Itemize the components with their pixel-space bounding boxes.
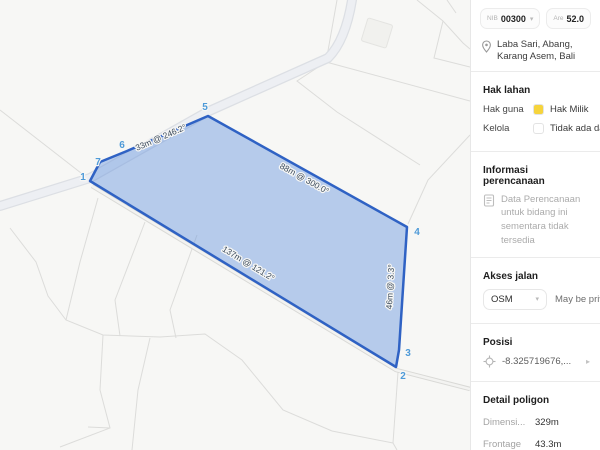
section-hak-lahan: Hak lahan Hak guna Hak Milik Kelola Tida… bbox=[471, 79, 600, 144]
position-row[interactable]: -8.325719676,... ▸ bbox=[483, 355, 590, 368]
vertex-label-4: 4 bbox=[414, 227, 420, 238]
row-value: Hak Milik bbox=[550, 104, 589, 115]
planning-info-row: Data Perencanaan untuk bidang ini sement… bbox=[483, 193, 590, 248]
parcel-app: 33m @ 246.2° 88m @ 300.0° 46m @ 3.3° 137… bbox=[0, 0, 600, 450]
divider bbox=[471, 323, 600, 324]
detail-row-frontage: Frontage 43.3m bbox=[483, 439, 590, 450]
divider bbox=[471, 381, 600, 382]
planning-info-text: Data Perencanaan untuk bidang ini sement… bbox=[501, 193, 590, 248]
kelola-swatch bbox=[533, 123, 544, 134]
area-field[interactable]: Are 52.0 bbox=[546, 8, 591, 29]
section-title: Detail poligon bbox=[483, 395, 590, 406]
detail-value: 43.3m bbox=[535, 439, 561, 450]
row-value: Tidak ada data bbox=[550, 123, 600, 134]
road-source-select[interactable]: OSM ▾ bbox=[483, 289, 547, 310]
vertex-label-2: 2 bbox=[400, 371, 406, 382]
section-title: Informasi perencanaan bbox=[483, 165, 590, 187]
section-detail-poligon: Detail poligon Dimensi... 329m Frontage … bbox=[471, 389, 600, 450]
hak-milik-swatch bbox=[533, 104, 544, 115]
detail-label: Dimensi... bbox=[483, 417, 529, 428]
akses-row: OSM ▾ May be private bbox=[483, 289, 590, 310]
nib-field-value: 00300 bbox=[501, 14, 526, 24]
akses-note: May be private bbox=[555, 294, 600, 305]
section-informasi: Informasi perencanaan Data Perencanaan u… bbox=[471, 159, 600, 250]
divider bbox=[471, 151, 600, 152]
detail-label: Frontage bbox=[483, 439, 529, 450]
coordinates-value: -8.325719676,... bbox=[502, 356, 580, 367]
vertex-label-5: 5 bbox=[202, 102, 208, 113]
section-title: Akses jalan bbox=[483, 271, 590, 282]
location-pin-icon bbox=[481, 40, 492, 53]
section-title: Hak lahan bbox=[483, 85, 590, 96]
detail-value: 329m bbox=[535, 417, 559, 428]
vertex-label-1: 1 bbox=[80, 172, 86, 183]
document-icon bbox=[483, 194, 495, 207]
top-fields: NIB 00300 ▾ Are 52.0 bbox=[480, 8, 594, 29]
section-posisi: Posisi -8.325719676,... ▸ bbox=[471, 331, 600, 374]
details-sidebar: NIB 00300 ▾ Are 52.0 Laba Sari, Abang, K… bbox=[470, 0, 600, 450]
kelola-row: Kelola Tidak ada data bbox=[483, 123, 590, 134]
hak-guna-row: Hak guna Hak Milik bbox=[483, 104, 590, 115]
nib-field-label: NIB bbox=[487, 15, 498, 22]
row-label: Kelola bbox=[483, 123, 533, 134]
section-akses-jalan: Akses jalan OSM ▾ May be private bbox=[471, 265, 600, 316]
row-label: Hak guna bbox=[483, 104, 533, 115]
divider bbox=[471, 71, 600, 72]
chevron-right-icon: ▸ bbox=[586, 357, 590, 366]
vertex-label-3: 3 bbox=[405, 348, 411, 359]
vertex-label-6: 6 bbox=[119, 140, 125, 151]
road-source-value: OSM bbox=[491, 294, 513, 305]
detail-row-dimension: Dimensi... 329m bbox=[483, 417, 590, 428]
section-title: Posisi bbox=[483, 337, 590, 348]
map-canvas[interactable]: 33m @ 246.2° 88m @ 300.0° 46m @ 3.3° 137… bbox=[0, 0, 470, 450]
nib-field[interactable]: NIB 00300 ▾ bbox=[480, 8, 540, 29]
chevron-down-icon: ▾ bbox=[535, 295, 539, 303]
location-row: Laba Sari, Abang, Karang Asem, Bali bbox=[481, 39, 592, 64]
chevron-down-icon[interactable]: ▾ bbox=[530, 15, 534, 23]
location-text: Laba Sari, Abang, Karang Asem, Bali bbox=[497, 39, 592, 64]
area-field-label: Are bbox=[553, 15, 563, 22]
crosshair-icon bbox=[483, 355, 496, 368]
divider bbox=[471, 257, 600, 258]
vertex-label-7: 7 bbox=[95, 157, 101, 168]
area-field-value: 52.0 bbox=[567, 14, 585, 24]
